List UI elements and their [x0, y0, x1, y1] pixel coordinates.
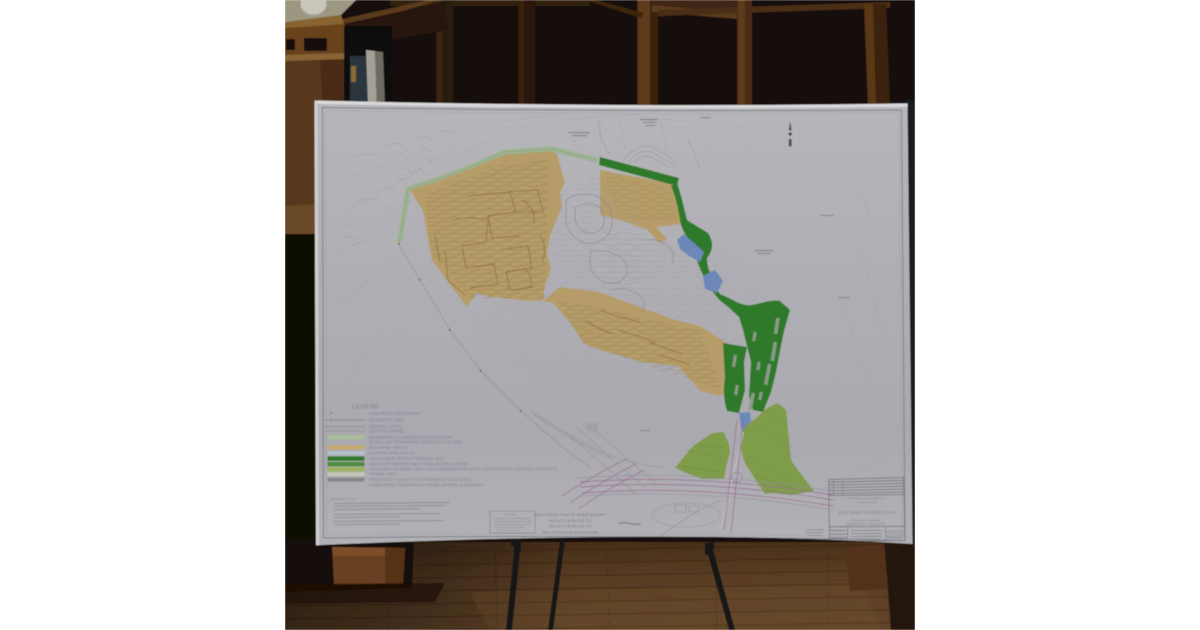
svg-text:2022 MINE LICENSE PLAN: 2022 MINE LICENSE PLAN: [838, 510, 895, 515]
svg-text:PROPERTY LINE: PROPERTY LINE: [369, 417, 404, 422]
svg-text:2022 LICENSE PLAN OF "ROME QUA: 2022 LICENSE PLAN OF "ROME QUARRY": [533, 513, 607, 517]
svg-text:ROCKAWAY QUARRY: ROCKAWAY QUARRY: [855, 501, 878, 504]
svg-text:MORRIS COUNTY, NEW JERSEY: MORRIS COUNTY, NEW JERSEY: [846, 522, 886, 526]
svg-text:FUTURE MINE AREAS: FUTURE MINE AREAS: [369, 450, 415, 455]
svg-text:LIMIT OF MINING: LIMIT OF MINING: [369, 429, 405, 434]
svg-text:LEGEND: LEGEND: [352, 405, 380, 411]
svg-text:TAX LOT 2 IN BLOCK 710: TAX LOT 2 IN BLOCK 710: [548, 525, 592, 529]
svg-text:ROCKAWAY TOWNSHIP: ROCKAWAY TOWNSHIP: [851, 519, 881, 523]
svg-text:THUMB AREA: THUMB AREA: [369, 472, 398, 477]
svg-text:GENERAL NOTES: GENERAL NOTES: [330, 497, 355, 501]
svg-text:PROPOSED COUNTY OR TOWNSHIP BU: PROPOSED COUNTY OR TOWNSHIP BUILDINGS: [369, 477, 471, 482]
svg-text:2022 MINE AREAS: 2022 MINE AREAS: [369, 445, 407, 450]
svg-text:NOTES: NOTES: [505, 513, 515, 517]
svg-text:TRAP ROCK INDUSTRIES LLC: TRAP ROCK INDUSTRIES LLC: [848, 497, 885, 501]
svg-text:TAX LOT 6 IN BLOCK 711: TAX LOT 6 IN BLOCK 711: [548, 519, 591, 523]
svg-text:COMPLETED TEMPORARY STABILIZAT: COMPLETED TEMPORARY STABILIZATION & SEED…: [369, 482, 484, 487]
svg-text:RECLAIMED AREAS THROUGH 2022: RECLAIMED AREAS THROUGH 2022: [369, 456, 445, 461]
svg-text:TAX LOTS 43 & 43.16 BLOCK 901: TAX LOTS 43 & 43.16 BLOCK 901: [541, 530, 598, 534]
svg-text:CONCRETE MONUMENT: CONCRETE MONUMENT: [369, 411, 421, 416]
